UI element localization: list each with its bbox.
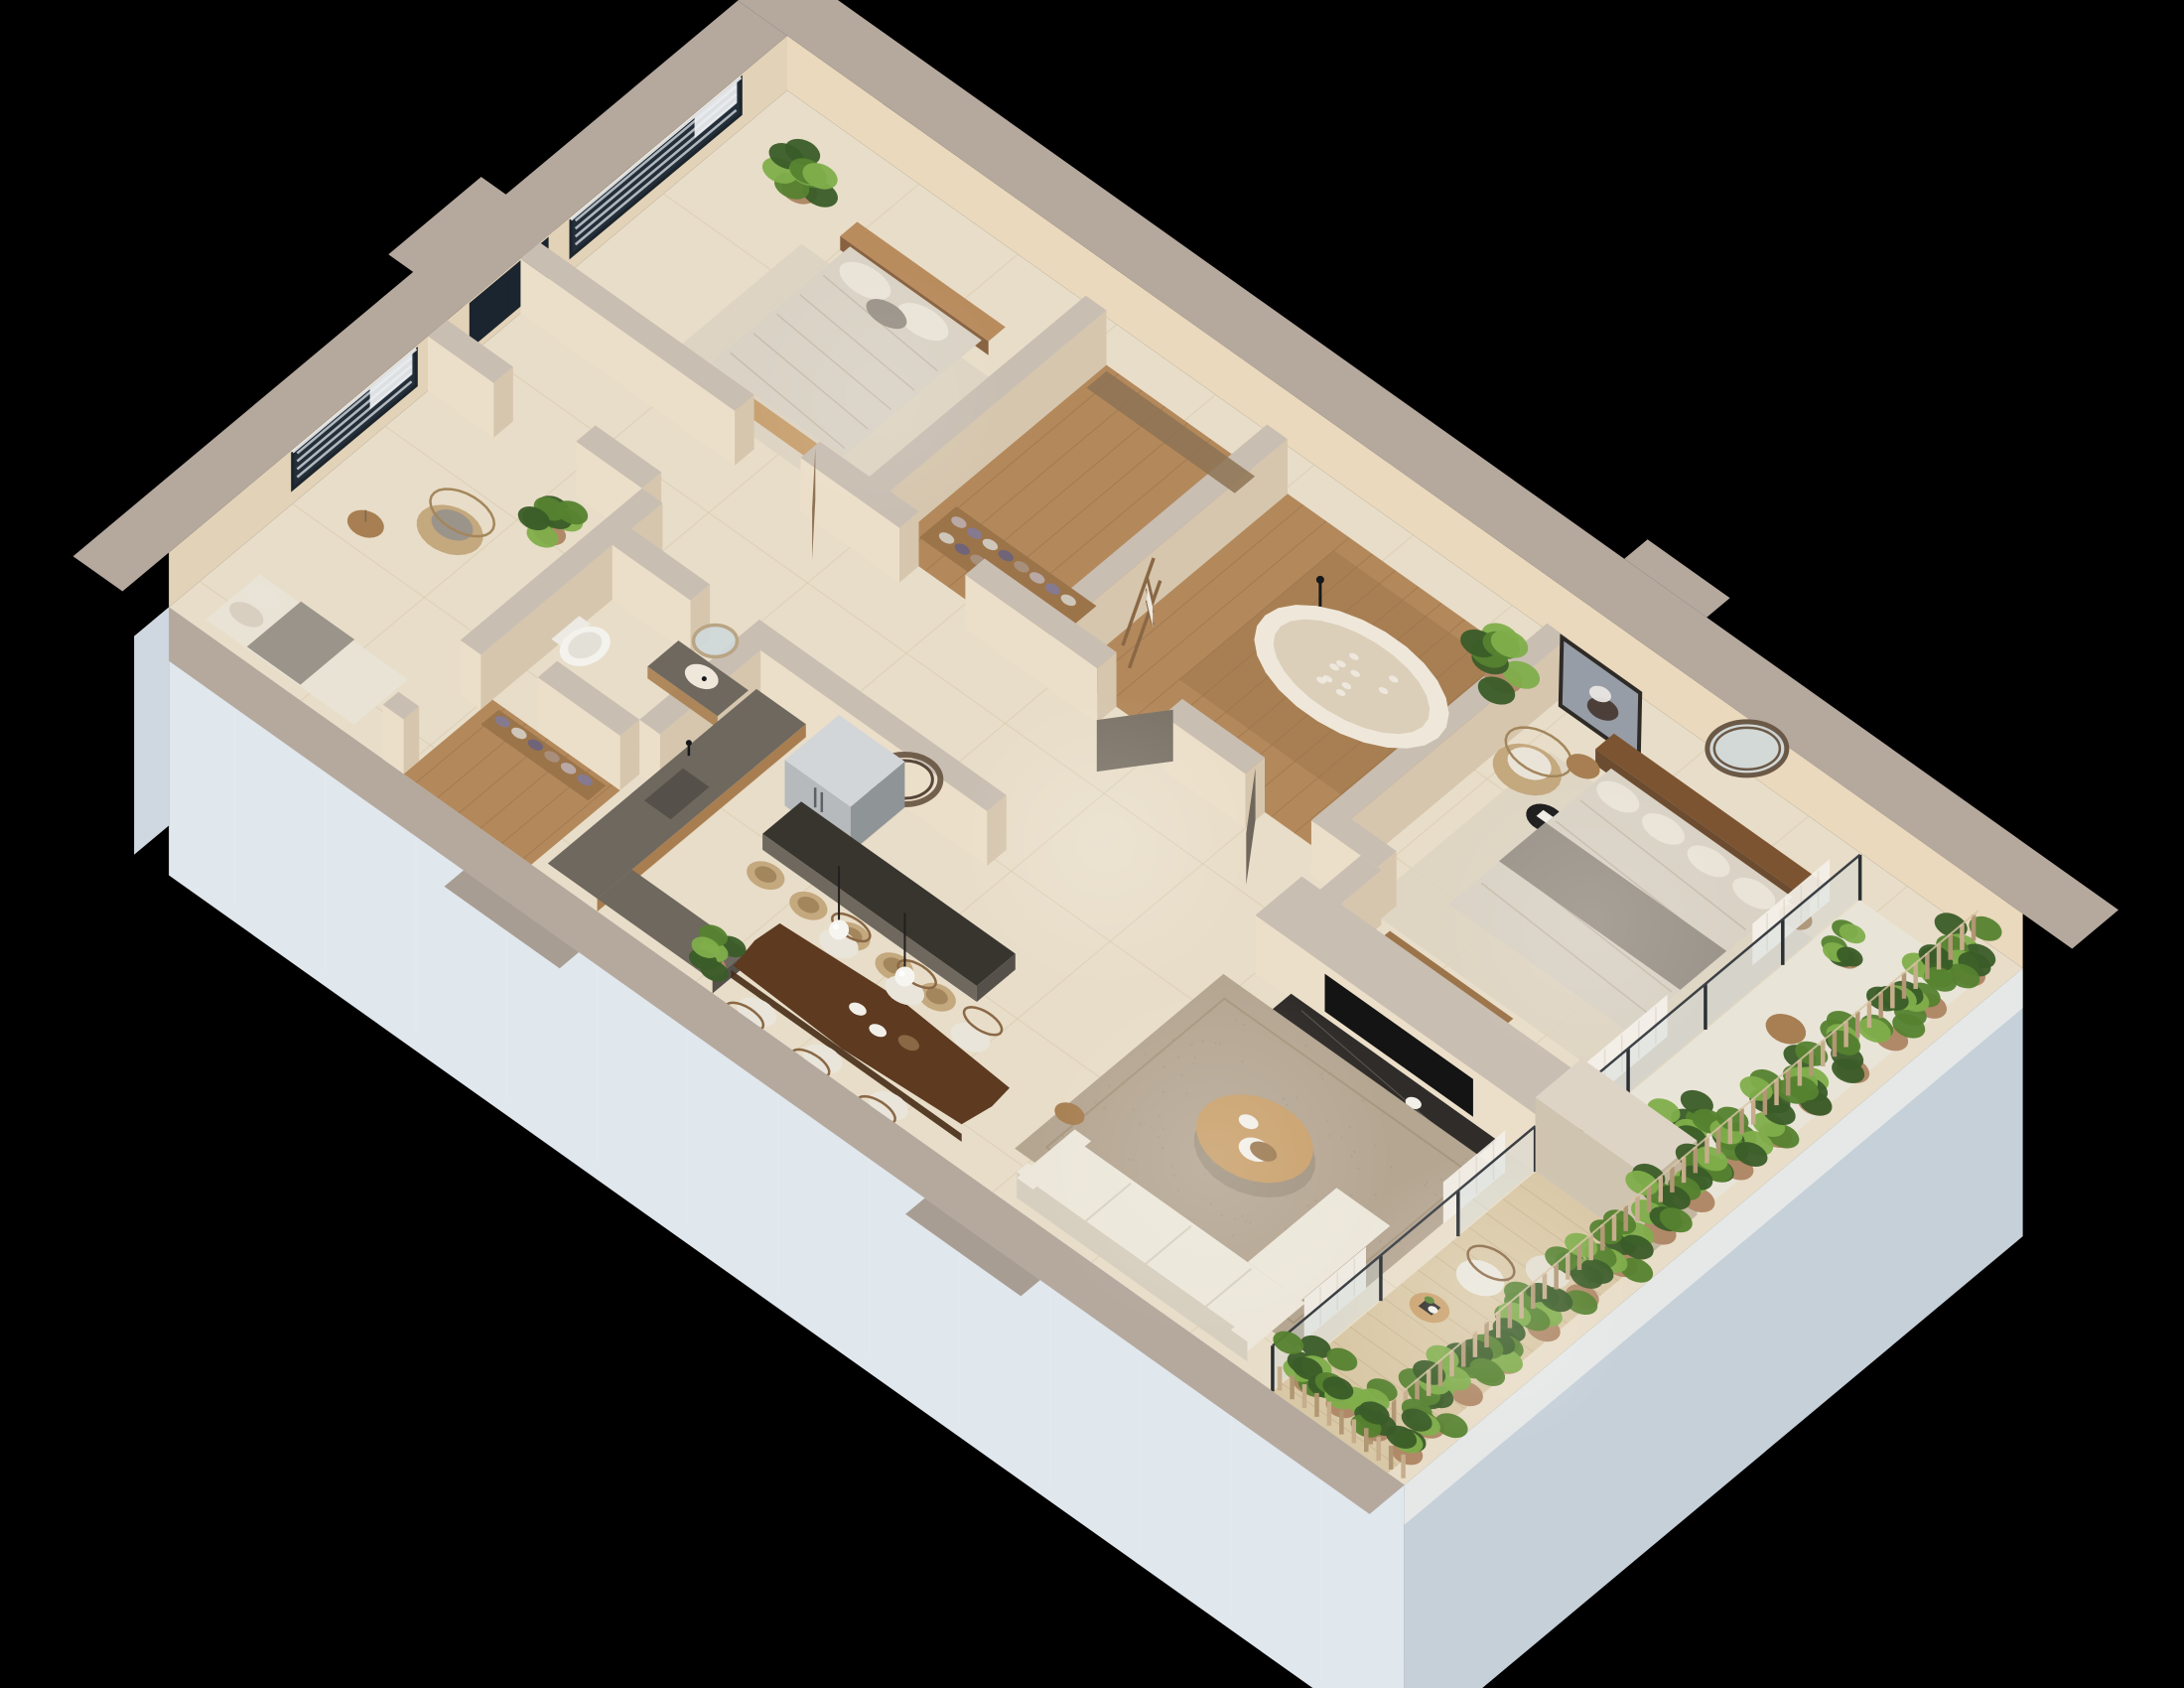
floorplan-render [0, 0, 2184, 1688]
floorplan-canvas [0, 0, 2184, 1688]
